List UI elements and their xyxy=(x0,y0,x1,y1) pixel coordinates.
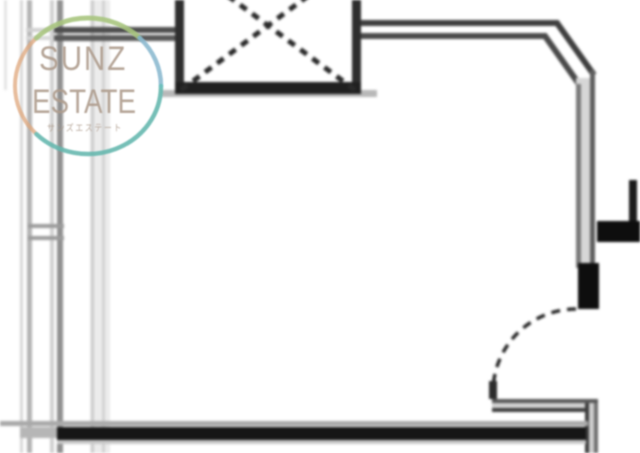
wall-line xyxy=(492,399,598,403)
doorway xyxy=(489,263,599,399)
elevator-shaft xyxy=(161,0,377,97)
shaft-cross-diagonal xyxy=(185,0,355,90)
bottom-wall xyxy=(0,421,588,444)
shaft-cross-diagonal xyxy=(181,0,351,90)
wall-line xyxy=(590,70,595,268)
wall-line xyxy=(20,427,57,438)
wall-line xyxy=(0,421,588,426)
logo-ring-blue-arc xyxy=(140,38,161,86)
wall-line xyxy=(20,0,23,453)
door-jamb xyxy=(578,263,599,309)
wall-line xyxy=(361,36,581,87)
wall-line xyxy=(576,84,581,268)
floorplan-drawing: SUNZ ESTATE サンズエステート xyxy=(0,0,640,453)
wall-tick xyxy=(28,236,64,240)
wall-line xyxy=(492,408,598,412)
shaft-bottom-border xyxy=(175,82,361,94)
wall-line xyxy=(54,27,178,33)
top-right-wall xyxy=(361,23,594,87)
shaft-left-border xyxy=(175,0,184,92)
wall-line xyxy=(594,403,598,453)
right-wall-stub xyxy=(597,180,640,242)
shaft-right-border xyxy=(352,0,361,92)
floorplan-page: SUNZ ESTATE サンズエステート xyxy=(0,0,640,453)
right-wall xyxy=(576,70,595,268)
logo-text-line1: SUNZ xyxy=(39,40,127,78)
wall-line xyxy=(4,0,7,90)
stub-horizontal xyxy=(597,221,640,242)
wall-line xyxy=(57,440,586,444)
door-swing-arc xyxy=(493,309,576,392)
stub-vertical xyxy=(629,180,637,226)
logo-text-line2: ESTATE xyxy=(32,83,136,121)
logo-text-line3-japanese: サンズエステート xyxy=(47,122,123,133)
wall-tick xyxy=(28,224,64,228)
door-leaf-end xyxy=(489,381,497,399)
wall-line-thick xyxy=(57,427,586,440)
wall-line xyxy=(361,23,594,75)
